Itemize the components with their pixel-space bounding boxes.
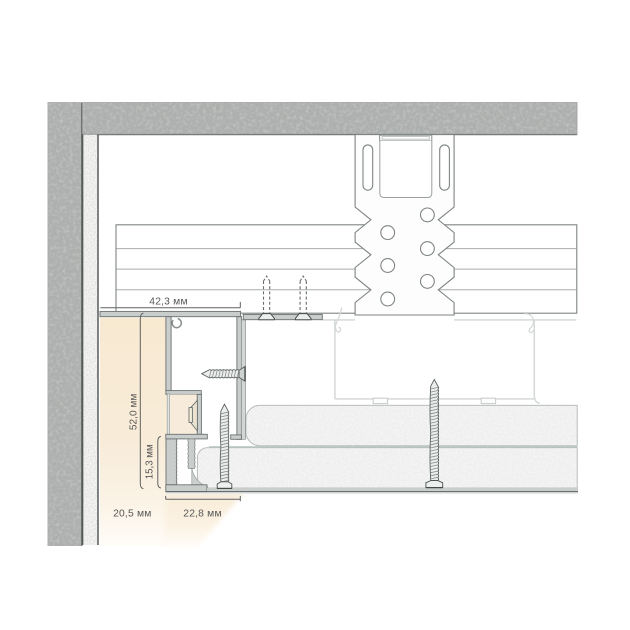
svg-text:42,3 мм: 42,3 мм — [149, 297, 187, 308]
svg-text:15,3 мм: 15,3 мм — [145, 444, 156, 479]
svg-text:52,0 мм: 52,0 мм — [128, 394, 139, 430]
svg-text:20,5 мм: 20,5 мм — [113, 508, 151, 519]
svg-text:22,8 мм: 22,8 мм — [183, 508, 221, 519]
